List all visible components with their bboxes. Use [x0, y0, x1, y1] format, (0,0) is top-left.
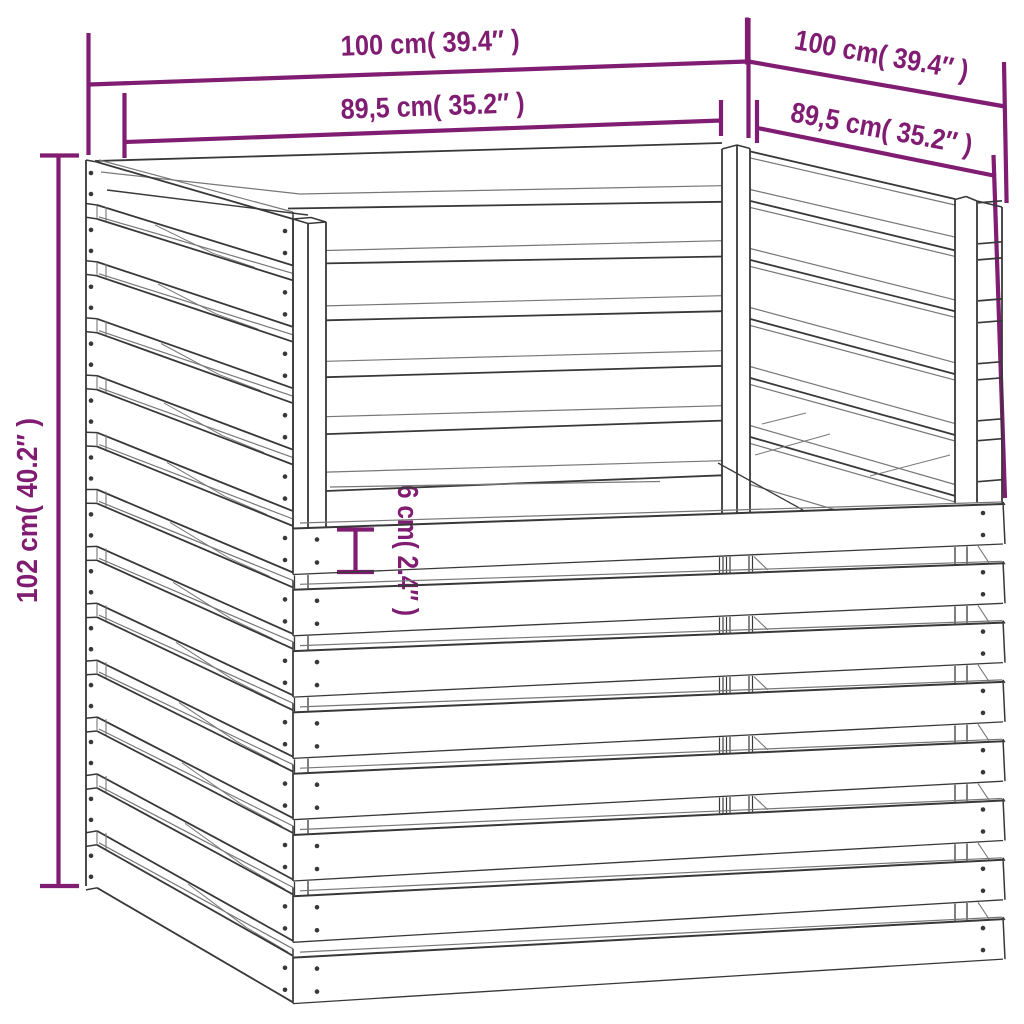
svg-text:89,5 cm( 35.2″ ): 89,5 cm( 35.2″ ) [340, 87, 525, 126]
svg-text:6 cm( 2.4″ ): 6 cm( 2.4″ ) [391, 485, 423, 616]
svg-text:102 cm( 40.2″ ): 102 cm( 40.2″ ) [12, 418, 44, 603]
svg-text:100 cm( 39.4″ ): 100 cm( 39.4″ ) [340, 24, 520, 63]
